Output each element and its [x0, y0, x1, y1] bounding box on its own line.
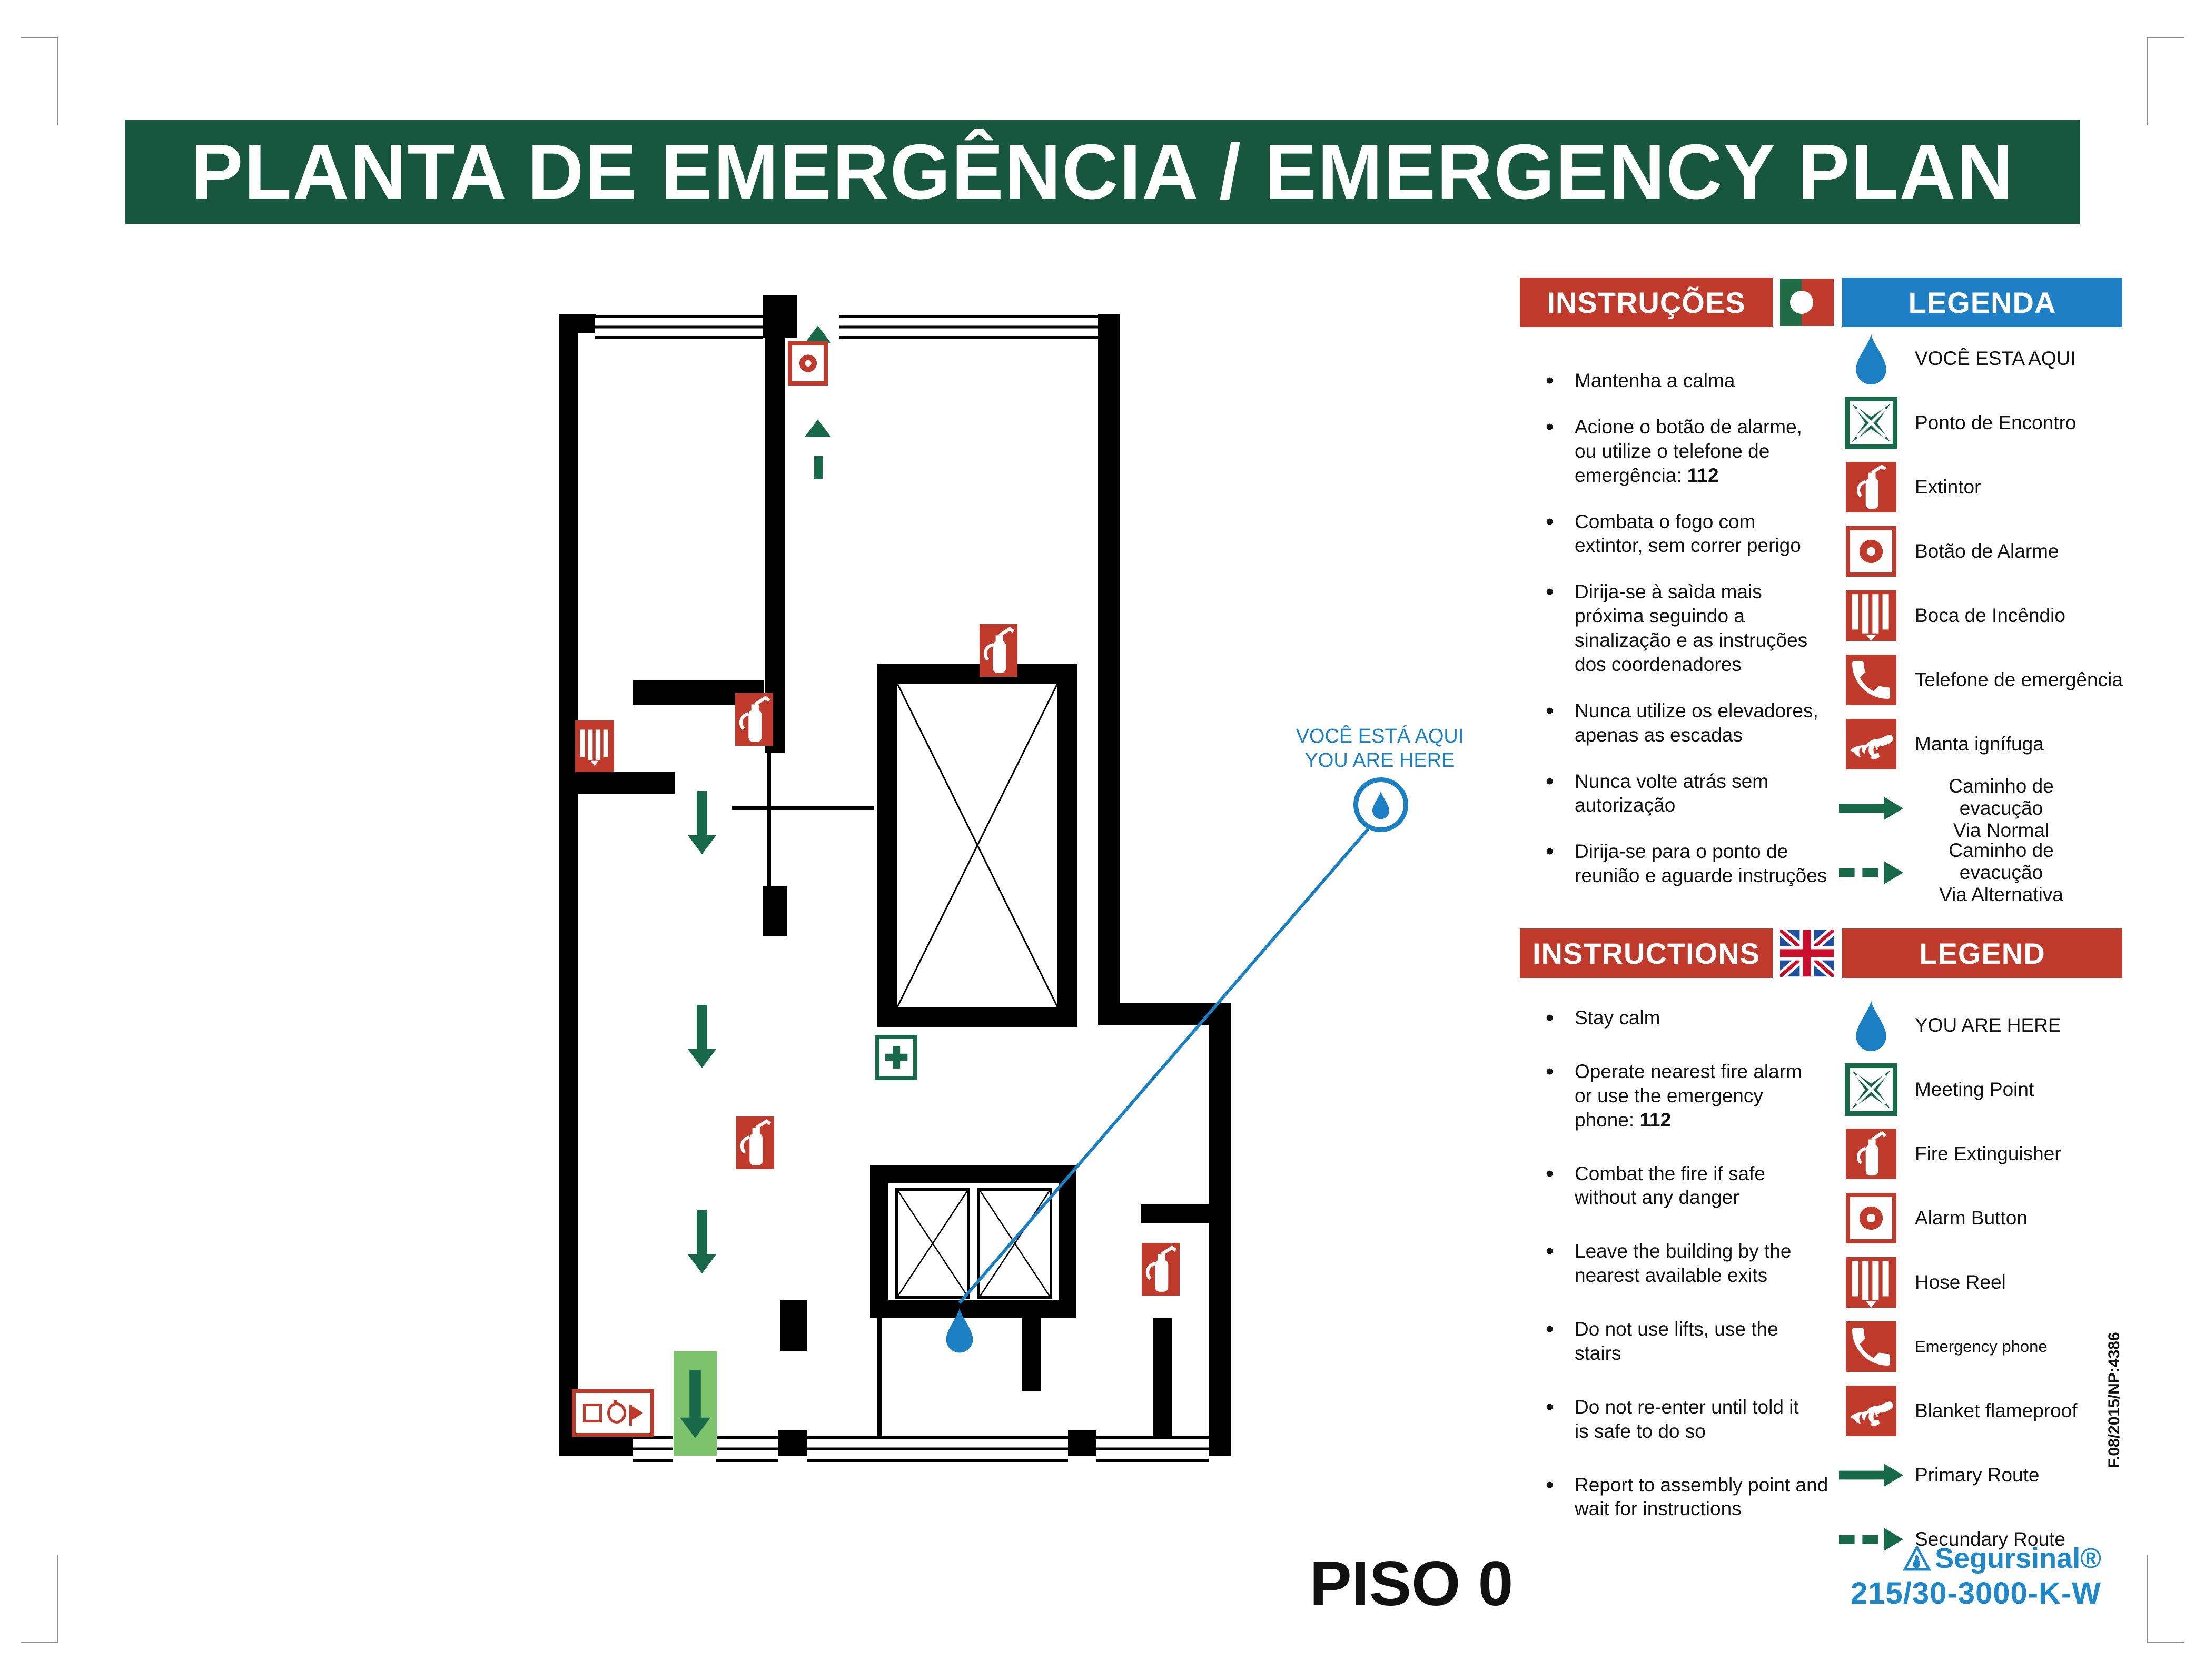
instruction-item: Report to assembly point and wait for in…	[1575, 1473, 1870, 1521]
legend-label: Blanket flameproof	[1915, 1400, 2078, 1422]
en-legend: YOU ARE HERE Meeting Point Fire Extingui…	[1839, 999, 2187, 1577]
legend-label: Meeting Point	[1915, 1079, 2034, 1101]
legend-label: Ponto de Encontro	[1915, 412, 2077, 434]
pt-legend: VOCÊ ESTA AQUI Ponto de Encontro Extinto…	[1839, 332, 2187, 910]
route-dash	[814, 456, 823, 479]
legend-label: Fire Extinguisher	[1915, 1143, 2061, 1165]
uk-flag-icon	[1780, 930, 1834, 977]
instruction-item: Leave the building by the nearest availa…	[1575, 1239, 1870, 1288]
page-title: PLANTA DE EMERGÊNCIA / EMERGENCY PLAN	[191, 127, 2014, 217]
legend-label: Telefone de emergência	[1915, 669, 2123, 691]
wall-segment	[765, 316, 785, 753]
pt-legend-header: LEGENDA	[1842, 278, 2122, 327]
primary-route-arrow-icon	[1839, 1463, 1903, 1487]
legend-label: Primary Route	[1915, 1464, 2039, 1486]
flag-glyph	[631, 1406, 643, 1420]
evacuation-arrow-down-icon	[688, 1210, 716, 1273]
evacuation-arrow-down-icon	[688, 791, 716, 854]
legend-item: Fire Extinguisher	[1839, 1127, 2187, 1181]
crop-mark	[2147, 37, 2184, 38]
you-are-here-connector	[948, 822, 1375, 1311]
en-instructions-title: INSTRUCTIONS	[1532, 936, 1760, 971]
instruction-item: Nunca volte atrás sem autorização	[1575, 769, 1870, 818]
partition-wall	[732, 806, 874, 810]
window	[633, 1436, 673, 1462]
instruction-item: Dirija-se para o ponto de reunião e agua…	[1575, 839, 1870, 888]
crop-mark	[21, 1642, 58, 1643]
en-instructions-list: Stay calm Operate nearest fire alarm or …	[1575, 1006, 1870, 1550]
window	[595, 315, 763, 339]
legend-label: Emergency phone	[1915, 1337, 2048, 1356]
instruction-item: Dirija-se à saìda mais próxima seguindo …	[1575, 580, 1870, 677]
crop-mark	[2147, 38, 2148, 125]
portugal-flag-icon	[1780, 279, 1834, 326]
alarm-button-icon	[1839, 526, 1903, 577]
legend-item: Ponto de Encontro	[1839, 396, 2187, 450]
legend-item: Extintor	[1839, 460, 2187, 514]
legend-item: Blanket flameproof	[1839, 1384, 2187, 1438]
instruction-item: Do not use lifts, use the stairs	[1575, 1317, 1870, 1366]
wall-segment	[1153, 1318, 1172, 1436]
secondary-route-arrow-icon	[1839, 861, 1903, 885]
instruction-item: Stay calm	[1575, 1006, 1870, 1030]
wall-segment	[763, 886, 787, 936]
window	[716, 1436, 778, 1462]
emergency-phone-icon	[1839, 1321, 1903, 1372]
legend-item: Meeting Point	[1839, 1063, 2187, 1116]
legend-label: Hose Reel	[1915, 1271, 2006, 1293]
instruction-item: Do not re-enter until told it is safe to…	[1575, 1395, 1870, 1444]
partition-wall	[877, 1318, 882, 1436]
evacuation-arrow-down-icon	[688, 1005, 716, 1068]
legend-label: YOU ARE HERE	[1915, 1014, 2061, 1036]
title-banner: PLANTA DE EMERGÊNCIA / EMERGENCY PLAN	[125, 120, 2080, 224]
brand-line: Segursinal®	[1727, 1542, 2101, 1575]
legend-item: Manta ignífuga	[1839, 717, 2187, 771]
window	[839, 315, 1098, 339]
instruction-item: Combata o fogo com extintor, sem correr …	[1575, 510, 1870, 558]
instruction-item: Operate nearest fire alarm or use the em…	[1575, 1060, 1870, 1132]
alarm-button-icon	[788, 341, 828, 386]
legend-item: Hose Reel	[1839, 1256, 2187, 1309]
pt-legend-title: LEGENDA	[1909, 285, 2056, 320]
crop-mark	[57, 38, 58, 125]
meeting-point-icon	[1839, 397, 1903, 449]
you-are-here-callout: VOCÊ ESTÁ AQUI YOU ARE HERE	[1253, 725, 1506, 773]
legend-item: Telefone de emergência	[1839, 653, 2187, 707]
you-are-here-drop-icon	[1839, 1000, 1903, 1051]
bottle-glyph	[607, 1402, 626, 1424]
exit-route-arrow-icon	[680, 1363, 710, 1445]
pt-instructions-title: INSTRUÇÕES	[1547, 285, 1745, 320]
pt-instructions-list: Mantenha a calma Acione o botão de alarm…	[1575, 369, 1870, 910]
window	[1096, 1436, 1209, 1462]
brand-name: Segursinal®	[1935, 1542, 2101, 1575]
crop-mark	[57, 1555, 58, 1642]
fire-extinguisher-icon	[980, 624, 1017, 677]
wall-segment	[778, 1430, 807, 1456]
pt-instructions-header: INSTRUÇÕES	[1520, 278, 1773, 327]
segursinal-logo-icon	[1903, 1546, 1931, 1571]
legend-item: Boca de Incêndio	[1839, 589, 2187, 643]
wall-segment	[780, 1300, 807, 1351]
legend-item: Caminho de evacução Via Normal	[1839, 782, 2187, 835]
instruction-item: Nunca utilize os elevadores, apenas as e…	[1575, 699, 1870, 747]
you-are-here-drop-icon	[1839, 333, 1903, 384]
brand-block: Segursinal® 215/30-3000-K-W	[1727, 1542, 2101, 1611]
legend-label: Botão de Alarme	[1915, 540, 2059, 562]
window	[807, 1436, 1068, 1462]
hose-reel-icon	[575, 720, 614, 772]
floor-label: PISO 0	[1264, 1547, 1559, 1620]
crop-mark	[2147, 1642, 2184, 1643]
callout-line-en: YOU ARE HERE	[1253, 749, 1506, 773]
en-legend-title: LEGEND	[1919, 936, 2045, 971]
document-reference: F.08/2015/NP:4386	[2105, 1332, 2123, 1468]
meeting-point-icon	[1839, 1063, 1903, 1116]
legend-item: Emergency phone	[1839, 1320, 2187, 1373]
legend-label: Boca de Incêndio	[1915, 605, 2065, 627]
fire-blanket-icon	[1839, 719, 1903, 769]
wall-segment	[559, 314, 578, 1455]
fire-extinguisher-icon	[735, 693, 773, 746]
wall-segment	[559, 314, 596, 333]
partition-wall	[767, 753, 771, 886]
hose-reel-icon	[1839, 1257, 1903, 1308]
fire-extinguisher-icon	[1839, 462, 1903, 512]
legend-item: Caminho de evacução Via Alternativa	[1839, 846, 2187, 900]
hose-reel-icon	[1839, 590, 1903, 641]
fire-blanket-icon	[1839, 1386, 1903, 1436]
legend-item: Botão de Alarme	[1839, 525, 2187, 578]
legend-label: Caminho de evacução Via Alternativa	[1906, 839, 2096, 906]
crop-mark	[21, 37, 58, 38]
you-are-here-drop-icon	[945, 1300, 974, 1360]
model-number: 215/30-3000-K-W	[1727, 1576, 2101, 1611]
primary-route-arrow-icon	[1839, 796, 1903, 821]
legend-item: VOCÊ ESTA AQUI	[1839, 332, 2187, 386]
wall-segment	[1068, 1430, 1096, 1456]
legend-label: Alarm Button	[1915, 1207, 2028, 1229]
legend-label: Caminho de evacução Via Normal	[1906, 775, 2096, 842]
square-glyph	[583, 1404, 602, 1422]
legend-label: Manta ignífuga	[1915, 733, 2044, 755]
wall-segment	[578, 772, 675, 794]
en-legend-header: LEGEND	[1842, 928, 2122, 978]
equipment-group-icon	[572, 1389, 654, 1437]
legend-item: YOU ARE HERE	[1839, 999, 2187, 1052]
legend-item: Primary Route	[1839, 1448, 2187, 1502]
evacuation-arrow-up-icon	[805, 411, 831, 446]
callout-line-pt: VOCÊ ESTÁ AQUI	[1253, 725, 1506, 749]
wall-segment	[1022, 1318, 1041, 1391]
first-aid-icon	[875, 1035, 917, 1080]
fire-extinguisher-icon	[736, 1116, 774, 1169]
instruction-item: Combat the fire if safe without any dang…	[1575, 1162, 1870, 1210]
alarm-button-icon	[1839, 1193, 1903, 1243]
legend-item: Alarm Button	[1839, 1191, 2187, 1245]
legend-label: Extintor	[1915, 476, 1981, 498]
emergency-plan-poster: PLANTA DE EMERGÊNCIA / EMERGENCY PLAN	[0, 0, 2205, 1680]
emergency-phone-icon	[1839, 655, 1903, 705]
legend-label: VOCÊ ESTA AQUI	[1915, 348, 2076, 370]
instruction-item: Acione o botão de alarme, ou utilize o t…	[1575, 415, 1870, 488]
fire-extinguisher-icon	[1839, 1129, 1903, 1179]
wall-segment	[559, 1436, 633, 1456]
instruction-item: Mantenha a calma	[1575, 369, 1870, 393]
en-instructions-header: INSTRUCTIONS	[1520, 928, 1773, 978]
